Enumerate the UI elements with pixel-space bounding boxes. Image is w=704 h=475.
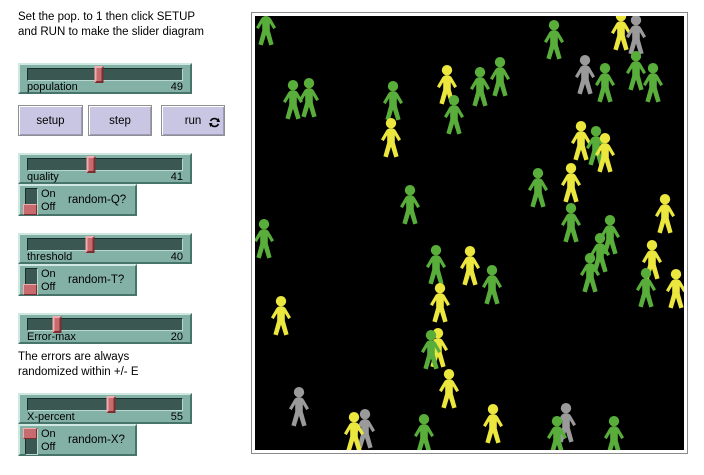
- person-figure-green: [419, 330, 443, 370]
- instruction-text: Set the pop. to 1 then click SETUP and R…: [18, 10, 250, 40]
- person-figure-gray: [624, 16, 648, 55]
- person-figure-green: [634, 268, 658, 308]
- forever-icon: [209, 117, 220, 131]
- person-figure-yellow: [428, 283, 452, 323]
- off-label: Off: [41, 281, 56, 294]
- slider-label: population: [27, 81, 78, 93]
- person-figure-green: [398, 185, 422, 225]
- person-figure-yellow: [593, 133, 617, 173]
- person-figure-green: [412, 414, 436, 450]
- slider-population: population 49: [18, 63, 192, 94]
- error-note-text: The errors are always randomized within …: [18, 350, 238, 380]
- toggle-handle[interactable]: [23, 204, 37, 215]
- slider-threshold: threshold 40: [18, 233, 192, 264]
- person-figure-yellow: [458, 246, 482, 286]
- person-figure-green: [641, 63, 665, 103]
- person-figure-green: [545, 416, 569, 450]
- slider-label: threshold: [27, 251, 72, 263]
- step-button-label: step: [109, 115, 131, 127]
- world-view[interactable]: [255, 16, 684, 450]
- person-figure-green: [602, 416, 626, 450]
- slider-value: 41: [171, 171, 183, 183]
- on-label: On: [41, 428, 56, 441]
- switch-random-x: On Off random-X?: [18, 424, 137, 456]
- person-figure-yellow: [481, 404, 505, 444]
- person-figure-green: [255, 219, 276, 259]
- switch-label: random-T?: [68, 266, 124, 294]
- setup-button[interactable]: setup: [18, 105, 83, 136]
- slider-label: quality: [27, 171, 59, 183]
- person-figure-green: [255, 16, 278, 46]
- toggle-handle[interactable]: [23, 284, 37, 295]
- slider-error-max: Error-max 20: [18, 313, 192, 344]
- toggle-handle[interactable]: [23, 428, 37, 439]
- off-label: Off: [41, 201, 56, 214]
- slider-x-percent: X-percent 55: [18, 393, 192, 424]
- slider-value: 20: [171, 331, 183, 343]
- person-figure-yellow: [379, 118, 403, 158]
- netlogo-interface: Set the pop. to 1 then click SETUP and R…: [0, 0, 704, 475]
- on-label: On: [41, 268, 56, 281]
- person-figure-yellow: [437, 369, 461, 409]
- slider-label: X-percent: [27, 411, 75, 423]
- slider-label: Error-max: [27, 331, 76, 343]
- person-figure-green: [442, 95, 466, 135]
- world-view-frame: [251, 12, 688, 454]
- slider-value: 55: [171, 411, 183, 423]
- person-figure-green: [424, 245, 448, 285]
- person-figure-green: [468, 67, 492, 107]
- switch-random-q: On Off random-Q?: [18, 184, 137, 216]
- switch-label: random-Q?: [68, 186, 126, 214]
- person-figure-gray: [287, 387, 311, 427]
- slider-quality: quality 41: [18, 153, 192, 184]
- run-button[interactable]: run: [161, 105, 225, 136]
- step-button[interactable]: step: [88, 105, 152, 136]
- person-figure-yellow: [653, 194, 677, 234]
- person-figure-yellow: [269, 296, 293, 336]
- person-figure-yellow: [664, 269, 684, 309]
- person-figure-green: [381, 81, 405, 121]
- person-figure-green: [542, 20, 566, 60]
- person-figure-green: [480, 265, 504, 305]
- off-label: Off: [41, 441, 56, 454]
- person-figure-green: [593, 63, 617, 103]
- setup-button-label: setup: [36, 115, 64, 127]
- switch-random-t: On Off random-T?: [18, 264, 137, 296]
- slider-value: 40: [171, 251, 183, 263]
- switch-label: random-X?: [68, 426, 125, 454]
- slider-value: 49: [171, 81, 183, 93]
- person-figure-green: [578, 253, 602, 293]
- person-figure-green: [281, 80, 305, 120]
- person-figure-yellow: [342, 412, 366, 450]
- person-figure-green: [526, 168, 550, 208]
- person-figure-green: [559, 203, 583, 243]
- person-figure-yellow: [559, 163, 583, 203]
- run-button-label: run: [185, 115, 202, 127]
- on-label: On: [41, 188, 56, 201]
